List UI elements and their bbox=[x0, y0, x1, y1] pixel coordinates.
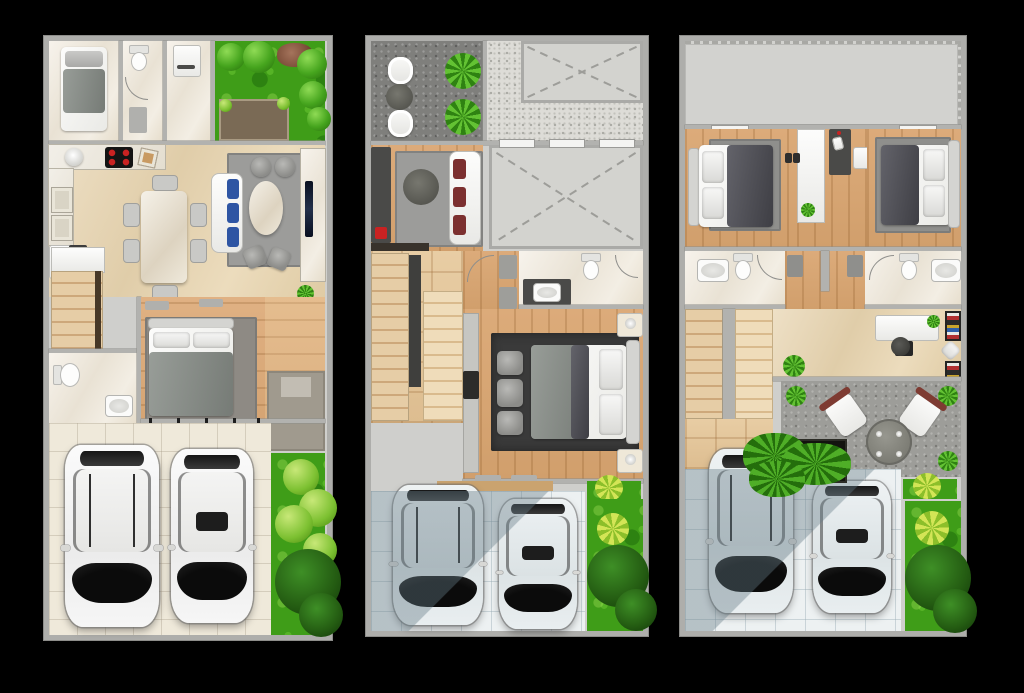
star-plant bbox=[597, 513, 629, 545]
balustrade bbox=[371, 243, 429, 251]
floor-plan-a bbox=[44, 36, 332, 640]
mirror bbox=[61, 545, 69, 550]
wall bbox=[821, 251, 829, 291]
tv bbox=[305, 181, 313, 237]
stair-divider bbox=[723, 309, 735, 419]
floor-plan-canvas bbox=[0, 0, 1024, 693]
sofa-cushion bbox=[227, 203, 239, 223]
rear-window bbox=[184, 455, 240, 469]
shrub bbox=[307, 107, 331, 131]
carport-shadow bbox=[371, 491, 585, 631]
lamp bbox=[625, 318, 636, 329]
door-mat bbox=[847, 255, 863, 277]
tree bbox=[299, 593, 343, 637]
dining-chair bbox=[190, 239, 207, 263]
stair-landing bbox=[51, 247, 105, 273]
door-mat bbox=[787, 255, 803, 277]
table-dot bbox=[896, 431, 902, 437]
toilet-bowl bbox=[583, 260, 599, 280]
pillow bbox=[193, 332, 230, 348]
windshield bbox=[177, 562, 248, 600]
bed-blanket bbox=[63, 69, 105, 113]
balcony-plant bbox=[445, 53, 481, 89]
staircase-run bbox=[735, 309, 773, 419]
dining-chair bbox=[152, 175, 178, 191]
star-plant bbox=[595, 475, 623, 501]
pillow bbox=[702, 187, 724, 219]
floor-plan-b bbox=[366, 36, 648, 636]
windshield bbox=[72, 563, 153, 603]
sofa-cushion bbox=[227, 227, 239, 247]
office-chair bbox=[891, 337, 910, 356]
driveway bbox=[371, 491, 585, 631]
device bbox=[785, 153, 792, 163]
shelf-plant bbox=[801, 203, 815, 217]
bed-pillow bbox=[65, 51, 103, 67]
round-table bbox=[403, 169, 439, 205]
floor-plan-c bbox=[680, 36, 966, 636]
staircase-run-down bbox=[423, 291, 463, 421]
balcony-chair bbox=[388, 57, 413, 84]
desk-plant bbox=[927, 315, 940, 328]
oval-coffee-table bbox=[249, 181, 283, 235]
window bbox=[549, 139, 585, 148]
ottoman bbox=[497, 379, 523, 407]
staircase-run-up bbox=[371, 253, 409, 421]
toilet-bowl bbox=[901, 260, 917, 280]
fern bbox=[749, 461, 805, 497]
terrace-plant bbox=[938, 451, 958, 471]
sink bbox=[931, 259, 961, 282]
sink bbox=[697, 259, 729, 282]
terrace-plant bbox=[786, 386, 806, 406]
staircase-run bbox=[685, 309, 723, 419]
tree bbox=[933, 589, 977, 633]
dining-chair bbox=[123, 203, 140, 227]
desk-item bbox=[837, 131, 841, 135]
stair-rail bbox=[409, 255, 421, 387]
lamp bbox=[625, 454, 636, 465]
dresser bbox=[145, 301, 169, 310]
patio-plant bbox=[277, 97, 290, 110]
blanket bbox=[149, 352, 233, 416]
vanity-sink bbox=[533, 283, 561, 302]
dresser bbox=[199, 299, 223, 307]
bookshelf bbox=[945, 311, 961, 341]
shrub bbox=[299, 81, 327, 109]
toilet-bowl bbox=[735, 260, 751, 280]
headboard bbox=[949, 141, 959, 227]
balcony-table bbox=[386, 84, 413, 110]
headboard bbox=[689, 149, 699, 225]
table-dot bbox=[876, 431, 882, 437]
table-dot bbox=[896, 451, 902, 457]
entry-step bbox=[281, 377, 311, 397]
sofa-cushion bbox=[453, 159, 466, 179]
ottoman bbox=[497, 351, 523, 375]
red-box bbox=[375, 227, 387, 239]
sofa-cushion bbox=[227, 179, 239, 199]
shrub bbox=[243, 41, 275, 73]
mirror bbox=[154, 545, 162, 550]
void-open-below bbox=[521, 41, 643, 103]
floor-plant bbox=[783, 355, 805, 377]
white-suv bbox=[65, 445, 159, 627]
headboard bbox=[627, 341, 639, 443]
stove bbox=[105, 147, 133, 168]
terrace-table bbox=[866, 419, 912, 465]
pillow bbox=[923, 185, 945, 217]
vanity-sink bbox=[105, 395, 133, 417]
pillow bbox=[599, 394, 623, 435]
dining-table bbox=[141, 191, 187, 283]
toilet-bowl bbox=[60, 363, 80, 387]
toilet-bowl bbox=[131, 52, 147, 71]
blanket bbox=[881, 145, 919, 225]
bath-mat bbox=[499, 287, 517, 309]
pillow bbox=[702, 151, 724, 183]
blanket bbox=[727, 145, 773, 227]
mirror bbox=[249, 545, 256, 550]
pouffe bbox=[251, 157, 271, 177]
shrub bbox=[217, 43, 245, 71]
pillow bbox=[153, 332, 190, 348]
shrub bbox=[297, 49, 327, 79]
base-cabinet bbox=[51, 215, 73, 241]
washer-controls bbox=[177, 65, 195, 69]
pouffe bbox=[275, 157, 295, 177]
base-cabinet bbox=[51, 187, 73, 213]
white-sedan bbox=[171, 449, 253, 623]
balcony-plant bbox=[445, 99, 481, 135]
bath-mat bbox=[129, 107, 147, 133]
pillow bbox=[923, 149, 945, 181]
patio-plant bbox=[219, 99, 232, 112]
window bbox=[499, 139, 535, 148]
roof-rails bbox=[86, 474, 139, 547]
washer bbox=[173, 45, 201, 77]
balcony-chair bbox=[388, 110, 413, 137]
sunroof bbox=[196, 512, 229, 531]
device bbox=[793, 153, 800, 163]
tree bbox=[615, 589, 657, 631]
pillow bbox=[599, 349, 623, 390]
rear-window bbox=[80, 451, 144, 466]
star-plant bbox=[915, 511, 949, 545]
star-plant bbox=[913, 473, 941, 499]
wardrobe-niche bbox=[463, 371, 479, 399]
flat-roof bbox=[685, 41, 961, 125]
window bbox=[599, 139, 635, 148]
bath-mat bbox=[499, 255, 517, 279]
cutting-board bbox=[137, 147, 158, 168]
dining-chair bbox=[123, 239, 140, 263]
kitchen-sink bbox=[65, 148, 83, 166]
sofa-cushion bbox=[453, 215, 466, 235]
stair-rail bbox=[95, 271, 101, 351]
table-dot bbox=[876, 451, 882, 457]
void-open-below bbox=[489, 145, 643, 249]
sofa-cushion bbox=[453, 187, 466, 207]
headboard bbox=[149, 319, 233, 328]
ottoman bbox=[497, 411, 523, 435]
blanket-throw bbox=[571, 345, 589, 439]
mirror bbox=[168, 545, 175, 550]
dining-chair bbox=[190, 203, 207, 227]
